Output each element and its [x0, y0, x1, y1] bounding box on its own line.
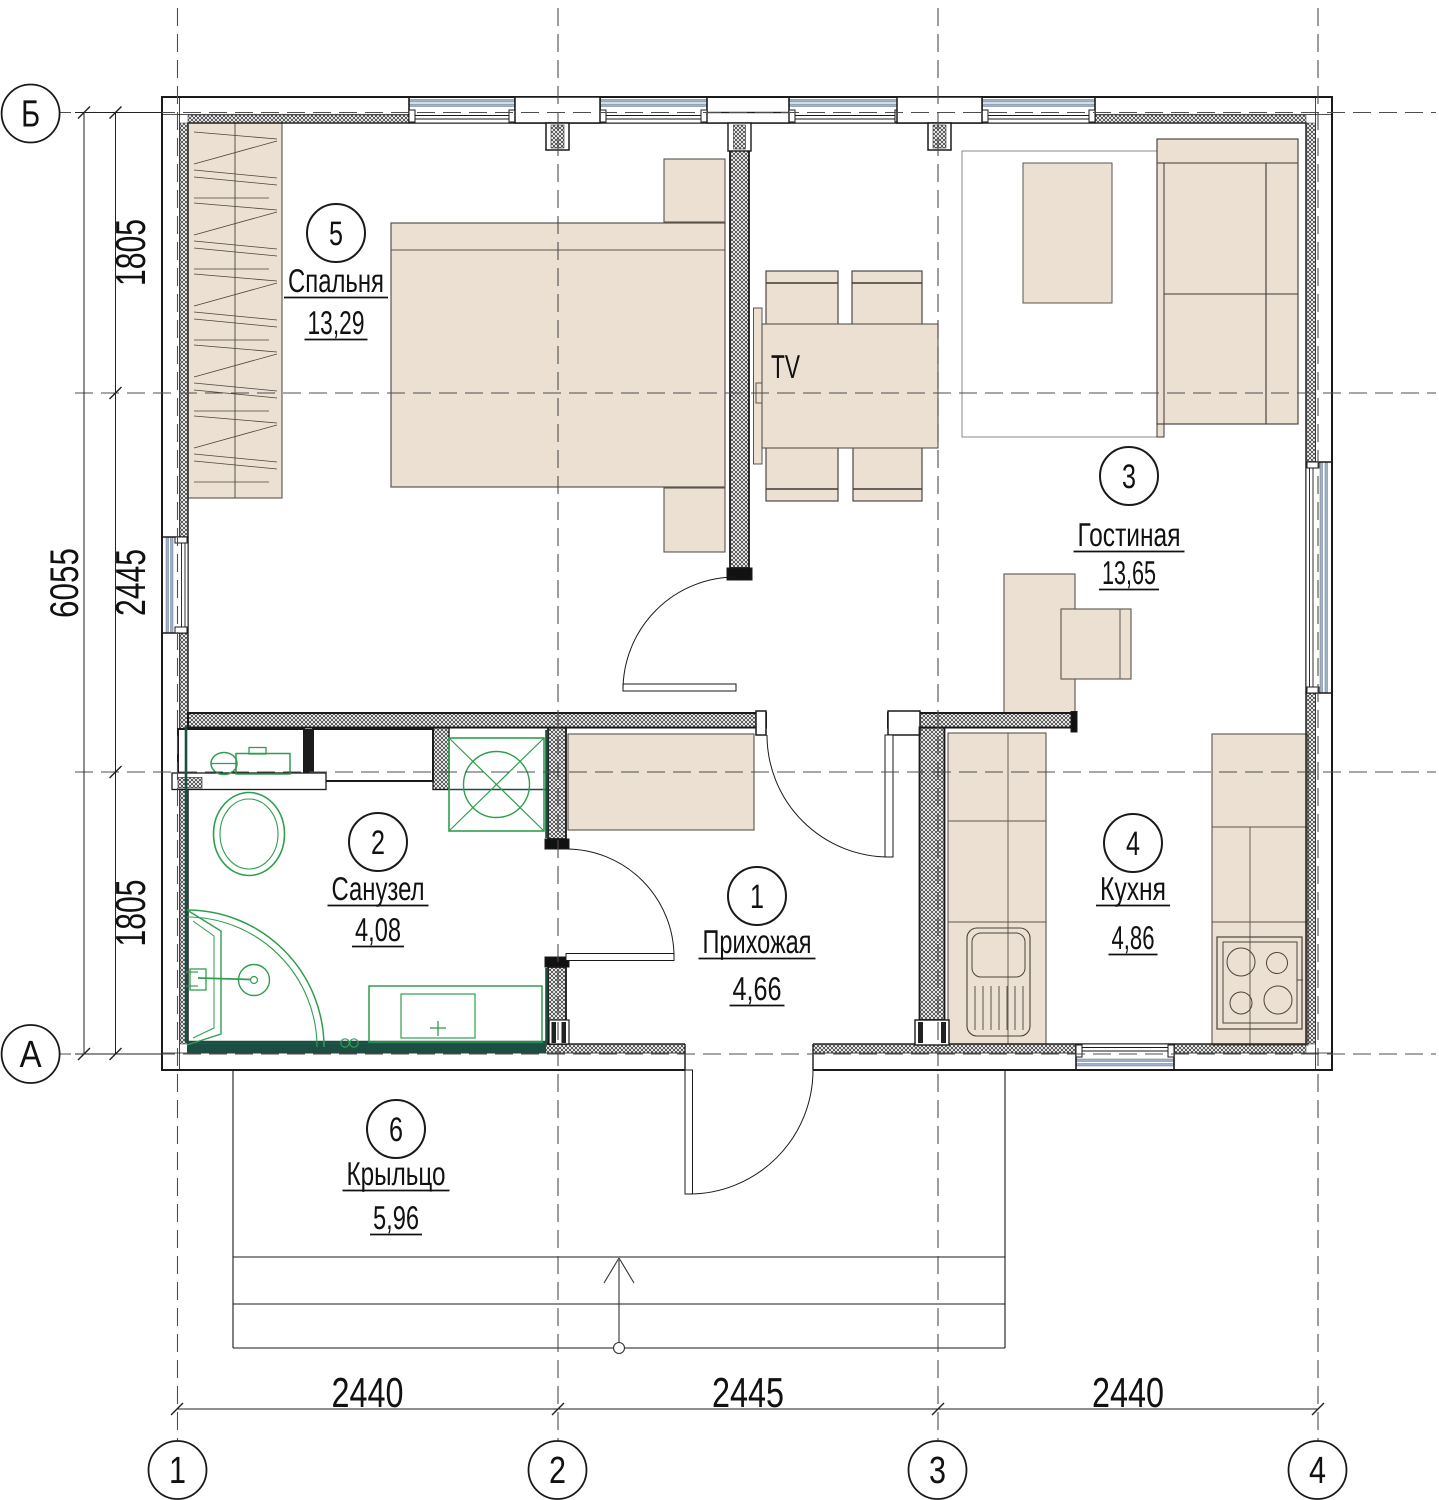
svg-text:Санузел: Санузел [332, 870, 425, 907]
svg-text:4,66: 4,66 [733, 970, 782, 1007]
svg-text:5: 5 [329, 215, 343, 253]
svg-text:Крыльцо: Крыльцо [347, 1155, 446, 1192]
svg-text:6055: 6055 [43, 548, 87, 618]
svg-text:13,65: 13,65 [1102, 554, 1156, 591]
svg-text:5,96: 5,96 [373, 1199, 419, 1236]
svg-text:3: 3 [1122, 458, 1136, 496]
svg-text:2445: 2445 [712, 1369, 784, 1416]
svg-text:Прихожая: Прихожая [703, 923, 812, 960]
svg-text:2: 2 [549, 1450, 566, 1492]
svg-text:3: 3 [929, 1450, 946, 1492]
svg-text:1: 1 [750, 878, 764, 916]
svg-text:4,86: 4,86 [1112, 919, 1155, 956]
svg-text:13,29: 13,29 [308, 304, 365, 341]
svg-text:Спальня: Спальня [288, 262, 384, 299]
svg-text:Кухня: Кухня [1100, 870, 1166, 907]
svg-text:Гостиная: Гостиная [1078, 516, 1181, 553]
svg-text:1805: 1805 [107, 880, 154, 947]
svg-text:4,08: 4,08 [355, 911, 401, 948]
svg-text:1: 1 [169, 1450, 186, 1492]
svg-text:2440: 2440 [332, 1369, 404, 1416]
svg-text:1805: 1805 [107, 219, 154, 286]
svg-text:Б: Б [21, 94, 40, 136]
svg-text:4: 4 [1309, 1450, 1326, 1492]
svg-text:А: А [20, 1034, 43, 1076]
svg-text:2: 2 [371, 824, 385, 862]
svg-text:2440: 2440 [1092, 1369, 1164, 1416]
svg-text:TV: TV [771, 348, 800, 385]
svg-text:6: 6 [389, 1111, 403, 1149]
svg-text:2445: 2445 [107, 549, 154, 616]
svg-text:4: 4 [1126, 825, 1140, 863]
